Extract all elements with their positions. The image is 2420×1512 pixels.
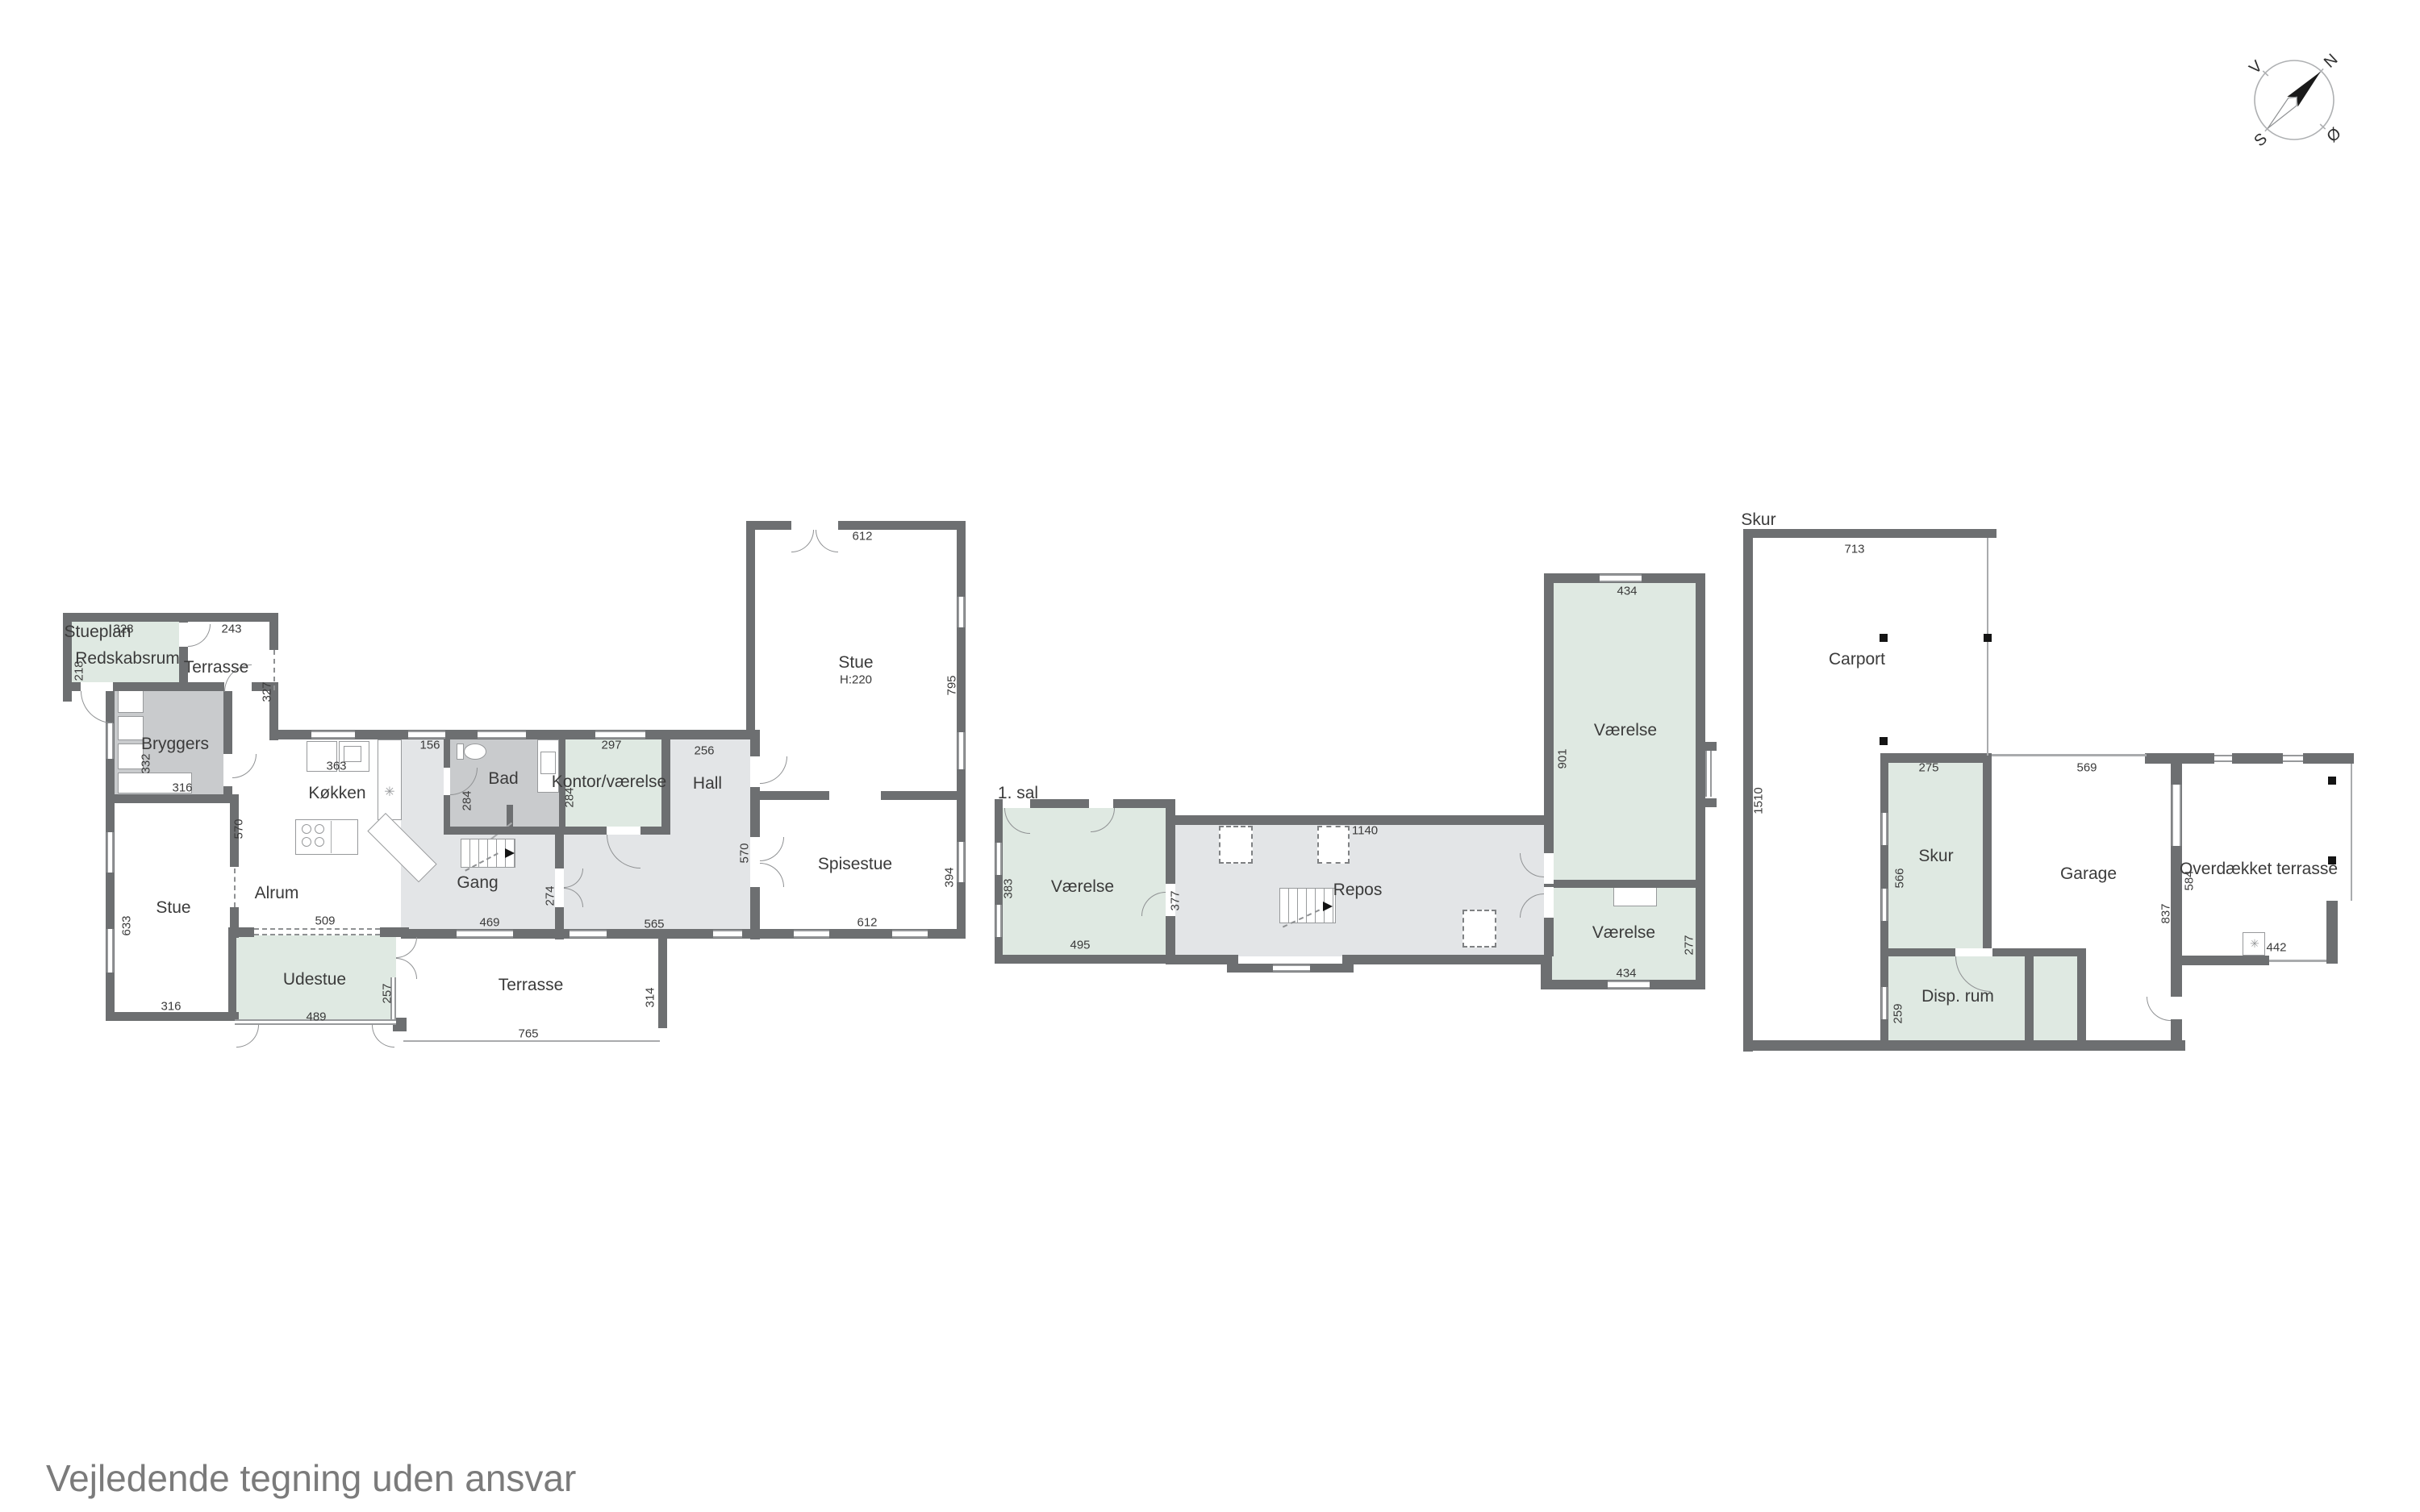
dim-label: 316 bbox=[161, 1000, 181, 1014]
window bbox=[478, 731, 526, 739]
dim-label: 612 bbox=[852, 530, 872, 544]
window bbox=[2172, 785, 2181, 846]
wall bbox=[995, 955, 1175, 964]
post-icon bbox=[2328, 777, 2336, 785]
dim-label: 314 bbox=[644, 987, 657, 1007]
window bbox=[1881, 987, 1888, 1019]
door-opening bbox=[1089, 799, 1113, 808]
window bbox=[958, 842, 965, 882]
room-label-disp-rum: Disp. rum bbox=[1921, 987, 1994, 1006]
door-arc bbox=[236, 1025, 259, 1048]
dim-label: 901 bbox=[1556, 748, 1570, 768]
thin-edge bbox=[2351, 764, 2352, 901]
window bbox=[995, 905, 1002, 937]
wall bbox=[1704, 742, 1717, 751]
skylight bbox=[1462, 910, 1496, 948]
room-label-udestue: Udestue bbox=[283, 970, 346, 989]
dim-label: 565 bbox=[644, 918, 664, 931]
wall bbox=[1696, 880, 1705, 989]
stove-burner-icon bbox=[302, 837, 311, 847]
room-label-vaerelse-s: Værelse bbox=[1592, 923, 1655, 943]
window bbox=[106, 929, 114, 973]
window bbox=[1608, 981, 1650, 989]
window bbox=[1881, 813, 1888, 845]
dim-label: 489 bbox=[306, 1010, 326, 1024]
dim-label: 332 bbox=[140, 753, 153, 773]
dim-label: 156 bbox=[419, 739, 440, 752]
room-label-bryggers: Bryggers bbox=[141, 735, 209, 754]
door-opening bbox=[223, 754, 232, 786]
window bbox=[595, 731, 645, 739]
wall bbox=[2180, 956, 2269, 965]
thin-edge bbox=[1992, 754, 2147, 756]
dim-label: 570 bbox=[738, 843, 752, 863]
window bbox=[794, 930, 829, 938]
wall bbox=[1704, 798, 1717, 807]
window bbox=[2283, 755, 2303, 762]
dim-label: 570 bbox=[232, 818, 246, 839]
door-opening bbox=[179, 623, 188, 647]
door-opening bbox=[1544, 853, 1554, 884]
room-label-vaerelse-n: Værelse bbox=[1594, 721, 1657, 740]
dim-label: 1140 bbox=[1352, 824, 1378, 838]
stairs-arrow-icon bbox=[505, 848, 515, 858]
wall bbox=[1696, 573, 1705, 888]
window bbox=[408, 731, 445, 739]
island-divider bbox=[331, 821, 332, 853]
thin-edge bbox=[1987, 538, 1988, 756]
room-label-gang: Gang bbox=[457, 873, 498, 893]
wall bbox=[106, 1012, 239, 1021]
dim-label: 795 bbox=[945, 675, 959, 695]
plan-title-outbuilding: Skur bbox=[1741, 510, 1775, 530]
room-label-stue-e: Stue bbox=[838, 653, 873, 673]
skylight bbox=[1219, 826, 1253, 864]
window bbox=[958, 732, 965, 769]
dim-label: 1510 bbox=[1752, 787, 1766, 814]
wall bbox=[658, 938, 667, 1028]
door-opening bbox=[791, 521, 838, 530]
room-label-repos: Repos bbox=[1333, 881, 1383, 900]
door-arc bbox=[760, 863, 784, 887]
door-arc bbox=[396, 958, 417, 979]
fixture bbox=[1613, 887, 1657, 906]
grill-icon: ✳ bbox=[2246, 937, 2264, 953]
toilet-icon bbox=[464, 744, 486, 760]
wall bbox=[63, 613, 278, 622]
room-floor bbox=[2032, 955, 2079, 1042]
dim-label: 569 bbox=[2076, 761, 2097, 775]
window bbox=[311, 731, 355, 739]
dim-label: 363 bbox=[326, 760, 346, 773]
dim-label: 284 bbox=[461, 790, 474, 810]
wall bbox=[2232, 753, 2283, 764]
door-opening bbox=[750, 756, 760, 787]
room-label-hall: Hall bbox=[693, 774, 722, 793]
dim-label: 495 bbox=[1070, 939, 1090, 952]
dim-label: 584 bbox=[2183, 870, 2197, 890]
dim-label: 383 bbox=[1002, 878, 1016, 898]
post-icon bbox=[1880, 634, 1888, 642]
wall bbox=[746, 521, 755, 739]
window bbox=[2214, 755, 2232, 762]
door-arc bbox=[816, 530, 838, 552]
dim-label: 837 bbox=[2159, 903, 2173, 923]
wall bbox=[1983, 753, 1992, 952]
room-label-redskabsrum: Redskabsrum bbox=[75, 649, 180, 669]
door-arc bbox=[396, 937, 417, 958]
wall bbox=[1743, 1040, 2185, 1051]
stove-burner-icon bbox=[302, 824, 311, 834]
door-opening bbox=[81, 682, 113, 691]
room-label-spisestue: Spisestue bbox=[818, 855, 892, 874]
dim-label: 434 bbox=[1616, 967, 1636, 981]
wall bbox=[228, 927, 236, 1021]
room-label-stue-sw: Stue bbox=[156, 898, 190, 918]
dim-label: 377 bbox=[1169, 890, 1183, 910]
wall bbox=[106, 794, 115, 1021]
wall bbox=[746, 521, 966, 530]
window bbox=[995, 843, 1002, 875]
dim-label: H:220 bbox=[840, 673, 872, 687]
dim-label: 256 bbox=[694, 744, 714, 758]
door-arc bbox=[232, 754, 257, 778]
room-label-koekken: Køkken bbox=[308, 784, 365, 803]
window bbox=[1705, 751, 1712, 797]
fixture bbox=[540, 752, 556, 774]
thin-edge bbox=[2269, 960, 2326, 962]
stairs-arrow-icon bbox=[1323, 902, 1333, 911]
dim-label: 566 bbox=[1893, 868, 1907, 888]
dim-label: 765 bbox=[518, 1027, 538, 1041]
door-arc bbox=[2147, 997, 2171, 1021]
room-label-vaerelse-w: Værelse bbox=[1051, 877, 1114, 897]
dim-label: 275 bbox=[1918, 761, 1938, 775]
door-opening bbox=[829, 791, 881, 800]
dim-label: 274 bbox=[544, 885, 557, 906]
window bbox=[570, 930, 607, 938]
wall bbox=[2025, 948, 2034, 1040]
dim-label: 394 bbox=[943, 867, 957, 887]
room-label-overdaekket-terrasse: Overdækket terrasse bbox=[2180, 860, 2338, 879]
door-arc bbox=[791, 530, 814, 552]
plan-title-first: 1. sal bbox=[998, 784, 1038, 803]
door-arc bbox=[760, 837, 784, 861]
post-icon bbox=[1984, 634, 1992, 642]
dim-label: 442 bbox=[2266, 941, 2286, 955]
window bbox=[892, 930, 928, 938]
dim-label: 713 bbox=[1844, 543, 1864, 556]
window bbox=[106, 832, 114, 873]
dashed-opening bbox=[254, 934, 380, 935]
fixture bbox=[118, 716, 144, 740]
dim-label: 259 bbox=[1892, 1003, 1905, 1023]
dim-label: 612 bbox=[857, 916, 877, 930]
post-icon bbox=[1880, 737, 1888, 745]
dim-label: 316 bbox=[172, 781, 192, 795]
room-label-terrasse-s: Terrasse bbox=[499, 976, 564, 995]
door-arc bbox=[81, 691, 113, 723]
dim-label: 284 bbox=[563, 787, 577, 807]
dim-label: 434 bbox=[1617, 585, 1637, 598]
toilet-tank bbox=[457, 744, 464, 760]
dim-label: 509 bbox=[315, 914, 335, 928]
door-opening bbox=[1544, 887, 1554, 918]
floor-plan-canvas: N Ø S V Vejledende tegning uden ansvar ✳… bbox=[0, 0, 2420, 1512]
wall bbox=[2077, 948, 2086, 1040]
dim-label: 633 bbox=[120, 915, 134, 935]
room-label-bad: Bad bbox=[488, 769, 518, 789]
door-arc bbox=[188, 624, 211, 647]
dim-label: 328 bbox=[113, 623, 133, 636]
door-opening bbox=[1955, 948, 1992, 956]
dim-label: 469 bbox=[479, 916, 499, 930]
window bbox=[1600, 574, 1642, 582]
stove-burner-icon bbox=[315, 824, 324, 834]
window bbox=[457, 930, 513, 938]
room-label-carport: Carport bbox=[1829, 650, 1885, 669]
fixture bbox=[118, 689, 144, 713]
wall bbox=[1880, 753, 1888, 952]
dashed-opening bbox=[254, 928, 380, 930]
dim-label: 243 bbox=[221, 623, 241, 636]
wall bbox=[2326, 901, 2338, 964]
window bbox=[958, 597, 965, 627]
extractor-icon: ✳ bbox=[378, 784, 402, 805]
door-opening bbox=[2171, 997, 2182, 1019]
door-opening bbox=[750, 837, 760, 887]
door-opening bbox=[444, 768, 450, 795]
window bbox=[106, 723, 114, 759]
wall bbox=[1544, 573, 1554, 823]
dim-label: 327 bbox=[261, 681, 274, 702]
wall bbox=[1743, 529, 1996, 538]
disclaimer-text: Vejledende tegning uden ansvar bbox=[46, 1456, 576, 1500]
dashed-opening bbox=[234, 868, 236, 907]
door-arc bbox=[372, 1025, 394, 1048]
room-label-terrasse-nw: Terrasse bbox=[184, 658, 249, 677]
room-label-garage: Garage bbox=[2060, 864, 2117, 884]
wall bbox=[1544, 880, 1705, 888]
window bbox=[1273, 964, 1310, 972]
dim-label: 277 bbox=[1683, 935, 1696, 955]
wall bbox=[1342, 955, 1549, 964]
fixture bbox=[378, 739, 402, 820]
dim-label: 218 bbox=[73, 660, 86, 681]
room-label-alrum: Alrum bbox=[255, 884, 299, 903]
door-arc bbox=[760, 756, 787, 784]
wall bbox=[380, 927, 409, 937]
stove-burner-icon bbox=[315, 837, 324, 847]
wall bbox=[269, 613, 278, 650]
window bbox=[713, 930, 742, 938]
door-opening bbox=[607, 827, 640, 835]
skylight bbox=[1317, 826, 1350, 864]
wall bbox=[2303, 753, 2354, 764]
wall bbox=[106, 794, 232, 803]
dim-label: 297 bbox=[601, 739, 621, 752]
room-label-skur: Skur bbox=[1918, 847, 1953, 866]
window bbox=[1881, 889, 1888, 921]
dim-label: 257 bbox=[381, 983, 394, 1003]
